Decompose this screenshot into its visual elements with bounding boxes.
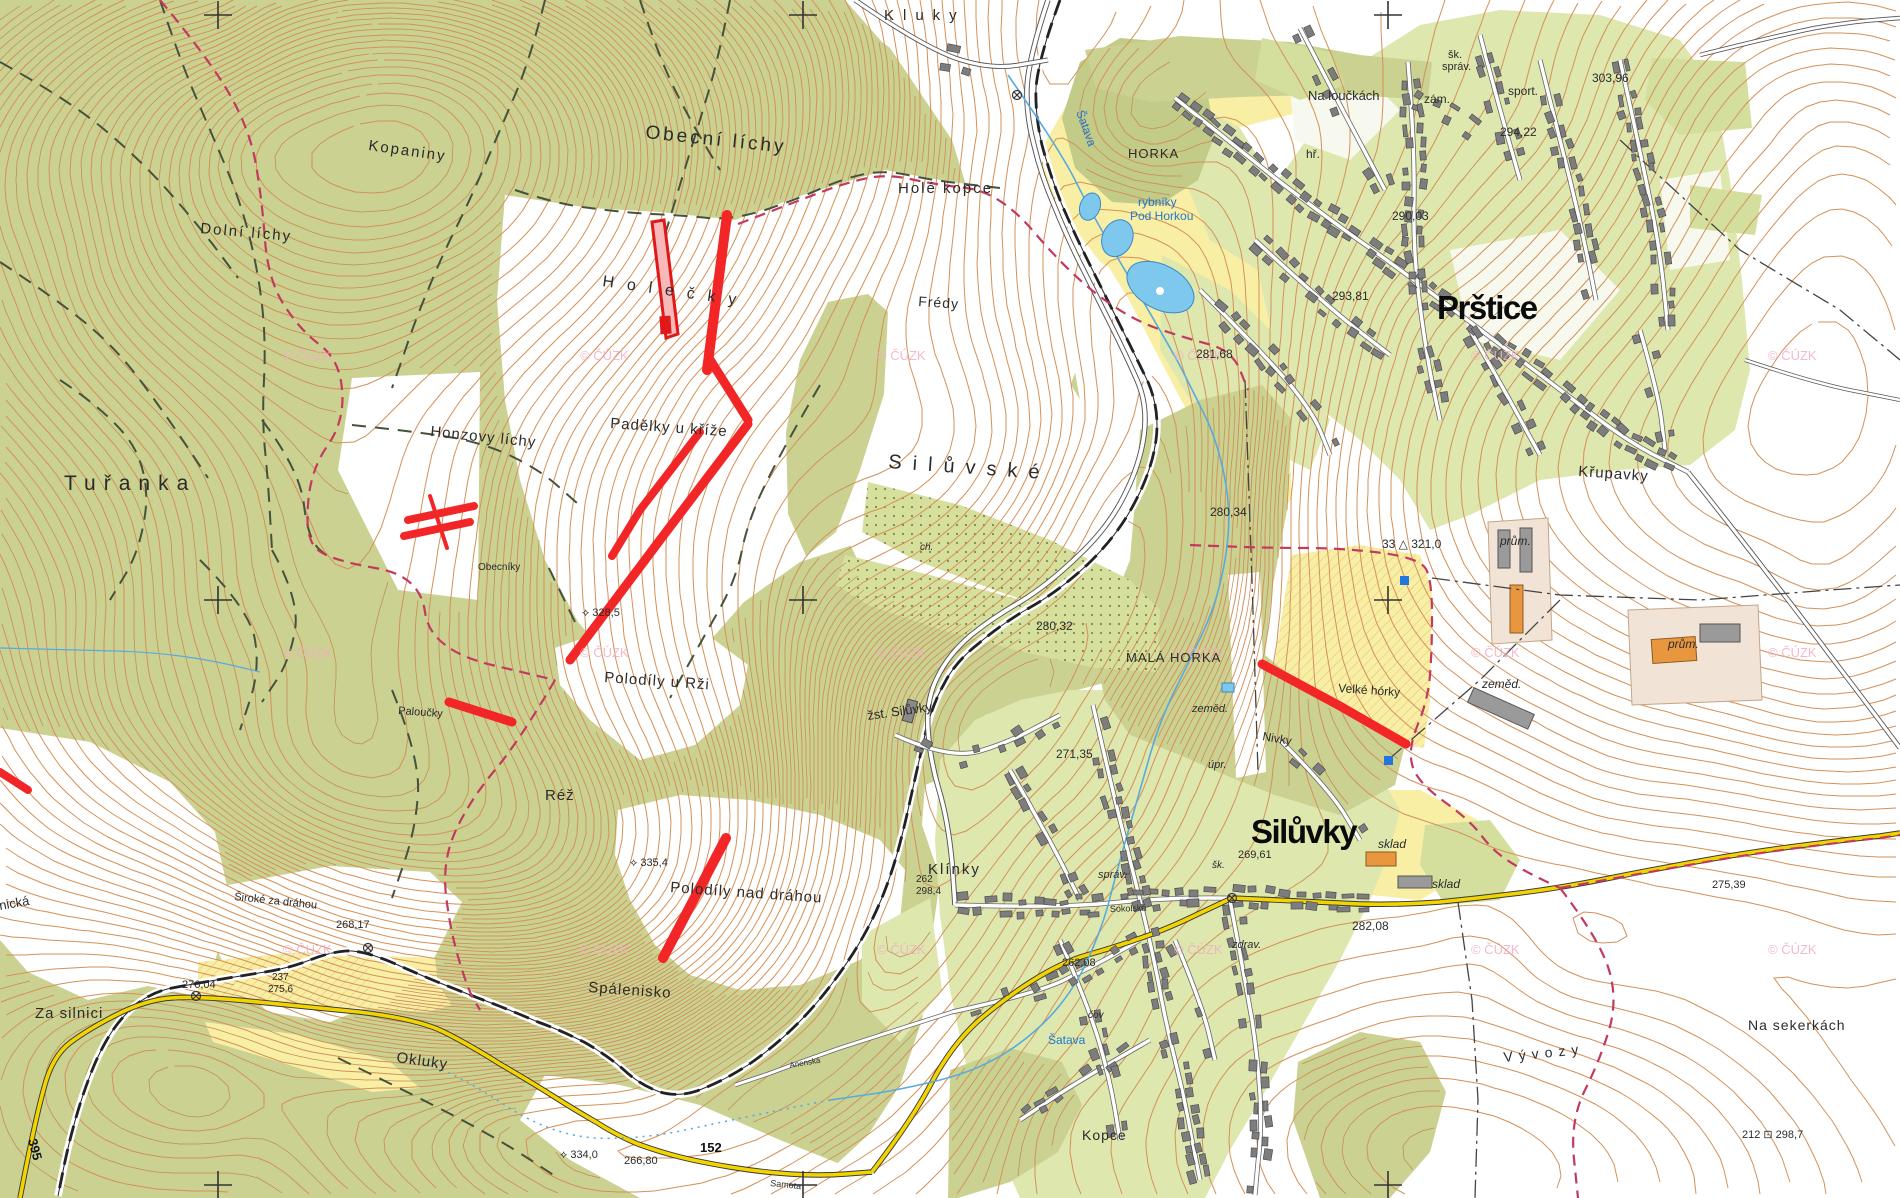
svg-text:© ČÚZK: © ČÚZK bbox=[1768, 942, 1817, 957]
svg-text:šk.: šk. bbox=[1448, 49, 1462, 61]
svg-text:© ČÚZK: © ČÚZK bbox=[1471, 348, 1520, 363]
svg-text:280,32: 280,32 bbox=[1036, 619, 1073, 633]
svg-text:Sokolská: Sokolská bbox=[1110, 903, 1147, 914]
svg-text:© ČÚZK: © ČÚZK bbox=[1471, 645, 1520, 660]
svg-text:šk.: šk. bbox=[1212, 860, 1225, 871]
svg-text:ch.: ch. bbox=[920, 542, 933, 553]
svg-text:© ČÚZK: © ČÚZK bbox=[283, 348, 332, 363]
svg-text:152: 152 bbox=[700, 1140, 722, 1155]
svg-text:© ČÚZK: © ČÚZK bbox=[1768, 348, 1817, 363]
svg-text:290,03: 290,03 bbox=[1392, 209, 1429, 223]
svg-text:269,61: 269,61 bbox=[1238, 849, 1272, 861]
svg-text:© ČÚZK: © ČÚZK bbox=[877, 348, 926, 363]
svg-text:rybníky: rybníky bbox=[1138, 195, 1177, 209]
svg-text:282,08: 282,08 bbox=[1352, 919, 1389, 933]
svg-text:© ČÚZK: © ČÚZK bbox=[877, 645, 926, 660]
svg-text:262: 262 bbox=[916, 874, 933, 885]
svg-text:© ČÚZK: © ČÚZK bbox=[283, 942, 332, 957]
svg-text:čov: čov bbox=[1088, 1010, 1105, 1021]
svg-text:Šatava: Šatava bbox=[1048, 1032, 1086, 1047]
svg-text:212 ⊡ 298,7: 212 ⊡ 298,7 bbox=[1742, 1129, 1803, 1141]
svg-text:úpr.: úpr. bbox=[1208, 759, 1227, 771]
svg-text:266,80: 266,80 bbox=[624, 1155, 658, 1167]
svg-text:© ČÚZK: © ČÚZK bbox=[580, 645, 629, 660]
svg-text:Obecníky: Obecníky bbox=[478, 562, 520, 573]
svg-text:správ.: správ. bbox=[1098, 869, 1127, 881]
svg-text:sport.: sport. bbox=[1508, 84, 1538, 98]
svg-text:294,22: 294,22 bbox=[1500, 125, 1537, 139]
svg-text:271,35: 271,35 bbox=[1056, 747, 1093, 761]
svg-text:237: 237 bbox=[272, 972, 289, 983]
svg-text:prům.: prům. bbox=[1667, 637, 1699, 651]
svg-text:262,08: 262,08 bbox=[1062, 957, 1096, 969]
svg-text:276,04: 276,04 bbox=[182, 979, 216, 991]
svg-text:303,96: 303,96 bbox=[1592, 71, 1629, 85]
svg-text:Na sekerkách: Na sekerkách bbox=[1748, 1017, 1846, 1033]
svg-text:prům.: prům. bbox=[1499, 534, 1531, 548]
svg-text:33 △ 321,0: 33 △ 321,0 bbox=[1382, 537, 1442, 551]
svg-text:Réž: Réž bbox=[545, 787, 575, 804]
svg-text:Silůvky: Silůvky bbox=[1251, 813, 1358, 850]
svg-text:Na loučkách: Na loučkách bbox=[1308, 88, 1380, 103]
svg-text:© ČÚZK: © ČÚZK bbox=[580, 942, 629, 957]
svg-text:© ČÚZK: © ČÚZK bbox=[283, 645, 332, 660]
svg-text:293,81: 293,81 bbox=[1332, 289, 1369, 303]
svg-text:Prštice: Prštice bbox=[1437, 289, 1538, 326]
svg-text:280,34: 280,34 bbox=[1210, 505, 1247, 519]
svg-text:sklad: sklad bbox=[1378, 837, 1406, 851]
svg-text:zeměd.: zeměd. bbox=[1191, 703, 1228, 715]
svg-text:MALÁ HORKA: MALÁ HORKA bbox=[1126, 650, 1221, 665]
svg-text:správ.: správ. bbox=[1442, 61, 1471, 73]
svg-text:Klínky: Klínky bbox=[928, 861, 981, 878]
svg-text:© ČÚZK: © ČÚZK bbox=[1471, 942, 1520, 957]
svg-text:Frédy: Frédy bbox=[918, 293, 960, 312]
svg-text:© ČÚZK: © ČÚZK bbox=[877, 942, 926, 957]
svg-text:Kopce: Kopce bbox=[1082, 1127, 1127, 1143]
svg-text:⟡ 328,5: ⟡ 328,5 bbox=[582, 607, 620, 619]
svg-text:Pod Horkou: Pod Horkou bbox=[1130, 209, 1193, 223]
svg-text:275,39: 275,39 bbox=[1712, 879, 1746, 891]
svg-text:hř.: hř. bbox=[1306, 147, 1320, 161]
svg-text:zeměd.: zeměd. bbox=[1481, 677, 1521, 691]
svg-text:281,68: 281,68 bbox=[1196, 347, 1233, 361]
svg-text:Kluky: Kluky bbox=[884, 7, 966, 24]
svg-text:⟡ 334,0: ⟡ 334,0 bbox=[560, 1149, 598, 1161]
svg-text:⟡ 335,4: ⟡ 335,4 bbox=[630, 857, 668, 869]
svg-text:zdrav.: zdrav. bbox=[1231, 939, 1261, 951]
svg-text:298,4: 298,4 bbox=[916, 886, 941, 897]
svg-text:© ČÚZK: © ČÚZK bbox=[580, 348, 629, 363]
svg-text:© ČÚZK: © ČÚZK bbox=[1174, 942, 1223, 957]
svg-text:Za silnici: Za silnici bbox=[35, 1005, 103, 1022]
svg-text:sklad: sklad bbox=[1432, 877, 1460, 891]
svg-text:Holé kopce: Holé kopce bbox=[898, 180, 993, 197]
svg-text:HORKA: HORKA bbox=[1128, 146, 1179, 161]
svg-text:268,17: 268,17 bbox=[336, 919, 370, 931]
svg-text:zám.: zám. bbox=[1424, 92, 1450, 106]
svg-text:275,6: 275,6 bbox=[268, 984, 293, 995]
svg-text:© ČÚZK: © ČÚZK bbox=[1768, 645, 1817, 660]
svg-text:Tuřanka: Tuřanka bbox=[64, 472, 196, 495]
